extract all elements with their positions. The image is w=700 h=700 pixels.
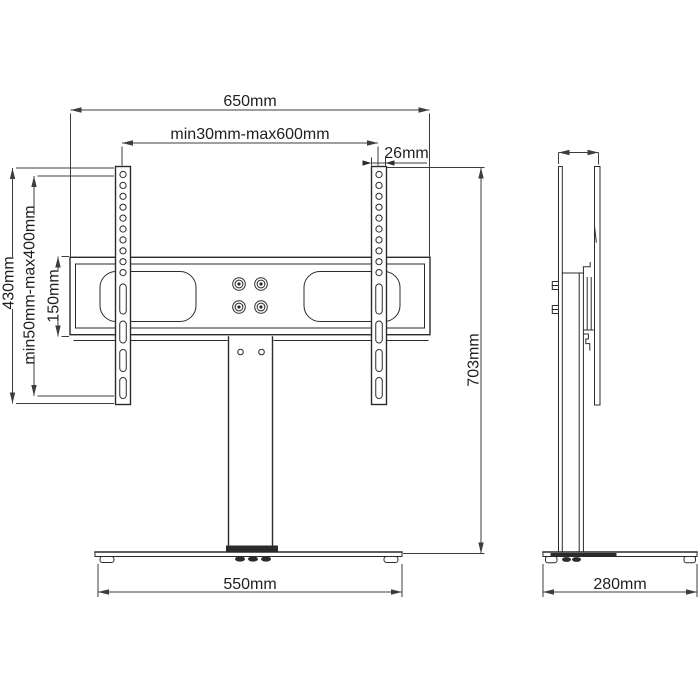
dim-label-rail-width: 26mm — [384, 145, 428, 162]
bar-cutout-left — [100, 272, 196, 322]
base-front — [95, 552, 402, 563]
column-hole — [238, 349, 244, 355]
side-view: 280mm — [543, 153, 697, 598]
base-foot-left — [100, 557, 114, 563]
column-hole — [259, 349, 265, 355]
dim-base-depth: 280mm — [543, 564, 697, 597]
dim-label-total-height: 703mm — [466, 333, 483, 386]
side-column — [562, 263, 593, 553]
vesa-rail-right — [372, 167, 387, 405]
screw — [233, 301, 246, 314]
front-view: 650mm min30mm-max600mm 26mm 430mm — [0, 93, 485, 597]
dim-base-width: 550mm — [98, 564, 402, 597]
dim-total-height: 703mm — [387, 168, 485, 554]
technical-drawing-page: 650mm min30mm-max600mm 26mm 430mm — [0, 0, 700, 700]
base-foot-left — [546, 557, 558, 563]
base-foot-right — [384, 557, 398, 563]
support-column — [226, 337, 278, 552]
dim-label-vesa-vertical: min50mm-max400mm — [22, 205, 39, 364]
dim-label-total-width: 650mm — [223, 93, 276, 110]
base-pad — [248, 556, 258, 561]
screw — [255, 301, 268, 314]
vesa-rail-left — [116, 167, 131, 405]
base-pad — [235, 556, 245, 561]
column-foot — [226, 546, 278, 552]
base-foot-band — [551, 553, 617, 557]
base-pad — [261, 556, 271, 561]
dim-label-hole-span: min30mm-max600mm — [170, 126, 329, 143]
mounting-screws — [233, 278, 268, 314]
base-pad — [572, 557, 581, 562]
base-pad — [562, 557, 571, 562]
dim-hole-span: min30mm-max600mm — [122, 126, 378, 166]
side-top-bracket — [559, 153, 599, 165]
dim-label-base-depth: 280mm — [593, 576, 646, 593]
dim-label-base-width: 550mm — [223, 576, 276, 593]
screw — [255, 278, 268, 291]
side-screw — [552, 306, 558, 314]
dim-label-rail-height: 430mm — [1, 256, 18, 309]
side-tv-panel — [595, 167, 601, 406]
dim-rail-width: 26mm — [363, 145, 429, 166]
dim-label-bar-height: 150mm — [46, 269, 63, 322]
side-rail-edge — [552, 167, 562, 553]
side-hook-detail — [584, 334, 590, 350]
base-foot-right — [684, 557, 696, 563]
dim-bar-height: 150mm — [44, 257, 69, 337]
side-screw — [552, 282, 558, 290]
screw — [233, 278, 246, 291]
base-side — [543, 552, 697, 563]
technical-drawing-canvas: 650mm min30mm-max600mm 26mm 430mm — [0, 0, 700, 700]
